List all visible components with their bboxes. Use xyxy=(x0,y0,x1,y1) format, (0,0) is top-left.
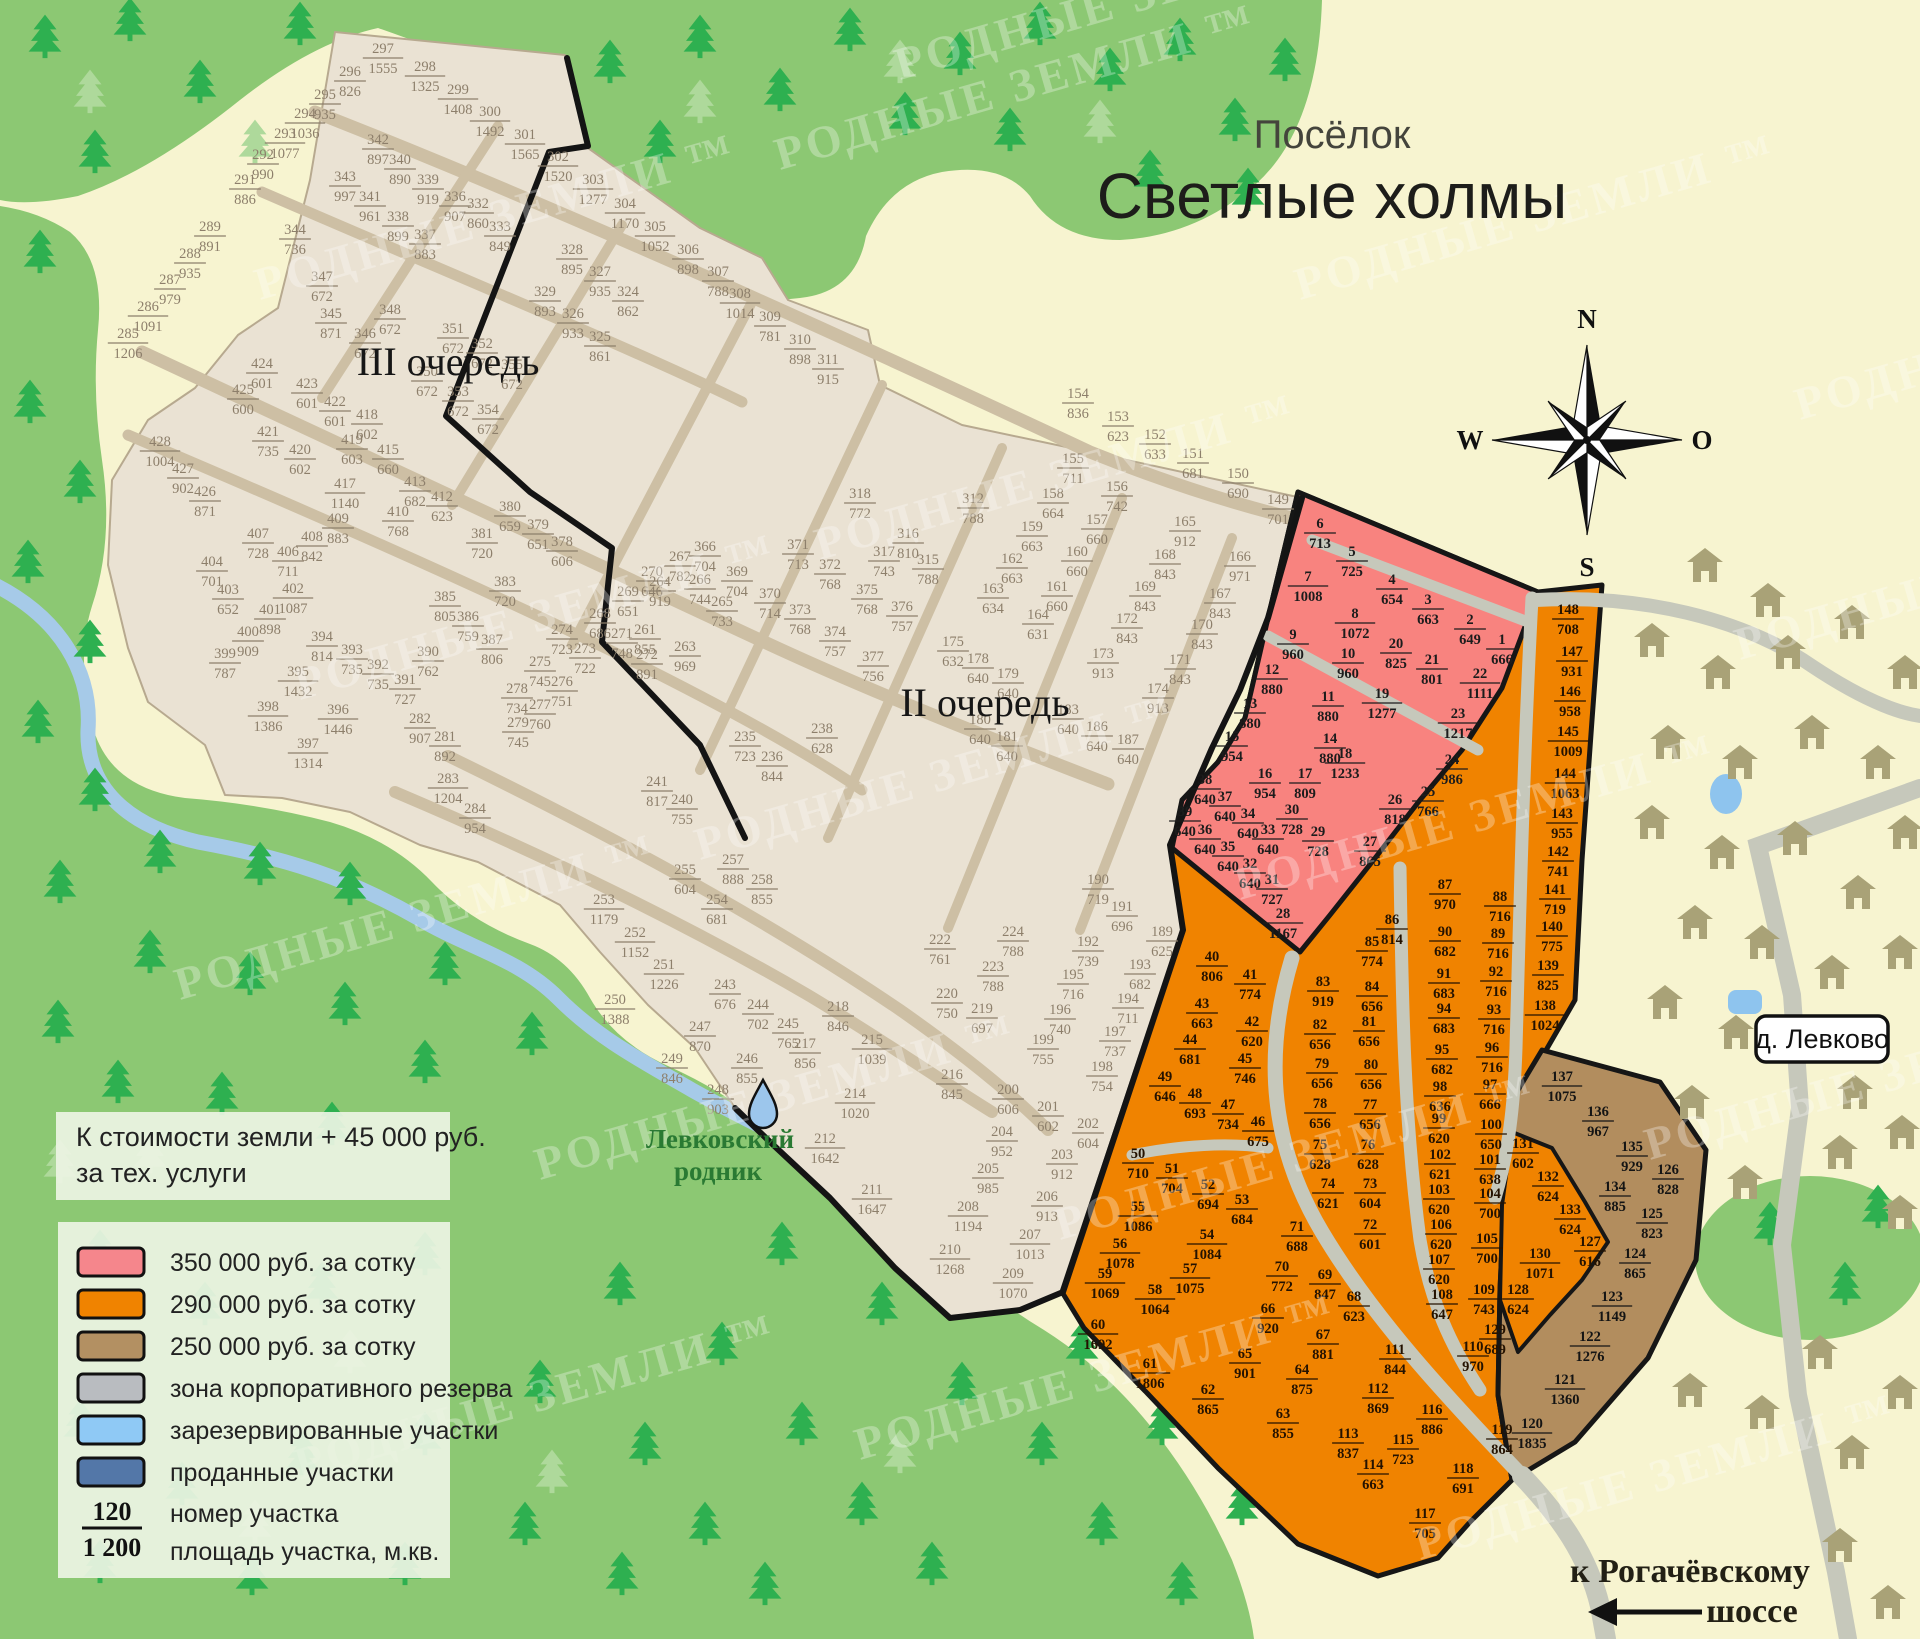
parcel-number: 325 xyxy=(589,329,611,345)
village-label-text: д. Левково xyxy=(1755,1024,1889,1054)
parcel-area: 1642 xyxy=(811,1151,840,1167)
parcel-area: 716 xyxy=(1062,987,1084,1003)
parcel-area: 676 xyxy=(714,997,736,1013)
compass-o: O xyxy=(1691,425,1712,455)
parcel-number: 246 xyxy=(736,1051,758,1067)
legend-label: зарезервированные участки xyxy=(170,1417,498,1445)
parcel-number: 287 xyxy=(159,272,181,288)
parcel-area: 1071 xyxy=(1526,1266,1555,1282)
parcel-number: 378 xyxy=(551,534,573,550)
legend-item-price-290: 290 000 руб. за сотку xyxy=(78,1290,416,1319)
parcel-area: 907 xyxy=(409,731,431,747)
parcel-area: 768 xyxy=(387,524,409,540)
parcel-number: 283 xyxy=(437,771,459,787)
parcel-area: 623 xyxy=(431,509,453,525)
parcel-area: 774 xyxy=(1361,954,1383,970)
sample-area-label: площадь участка, м.кв. xyxy=(170,1538,439,1566)
parcel-number: 311 xyxy=(817,352,838,368)
parcel-number: 374 xyxy=(824,624,847,640)
parcel-area: 825 xyxy=(1385,656,1407,672)
parcel-number: 370 xyxy=(759,586,781,602)
parcel-number: 258 xyxy=(751,872,773,888)
parcel-number: 353 xyxy=(447,384,469,400)
parcel-number: 4 xyxy=(1388,572,1395,588)
parcel-number: 41 xyxy=(1243,967,1258,983)
map-canvas: 2971555296826298132529593529914082941036… xyxy=(0,0,1920,1639)
parcel-area: 663 xyxy=(1001,571,1023,587)
legend-label: 250 000 руб. за сотку xyxy=(170,1333,416,1361)
parcel-area: 1077 xyxy=(271,146,300,162)
parcel-area: 735 xyxy=(257,444,279,460)
parcel-area: 898 xyxy=(789,352,811,368)
parcel-number: 30 xyxy=(1285,802,1300,818)
parcel-area: 701 xyxy=(1267,512,1289,528)
parcel-number: 404 xyxy=(201,554,224,570)
parcel-number: 286 xyxy=(137,299,159,315)
parcel-number: 25 xyxy=(1421,784,1436,800)
parcel-number: 310 xyxy=(789,332,811,348)
parcel-number: 109 xyxy=(1473,1282,1495,1298)
parcel-area: 979 xyxy=(159,292,181,308)
parcel-number: 68 xyxy=(1347,1289,1362,1305)
parcel-area: 696 xyxy=(1111,919,1133,935)
parcel-number: 133 xyxy=(1559,1202,1581,1218)
parcel-number: 218 xyxy=(827,999,849,1015)
parcel-number: 95 xyxy=(1435,1042,1450,1058)
compass-s: S xyxy=(1579,552,1594,582)
parcel-number: 249 xyxy=(661,1051,683,1067)
parcel-number: 196 xyxy=(1049,1002,1071,1018)
parcel-number: 22 xyxy=(1473,666,1488,682)
parcel-area: 970 xyxy=(1462,1359,1484,1375)
parcel-area: 606 xyxy=(997,1102,1019,1118)
parcel-number: 344 xyxy=(284,222,307,238)
parcel-number: 265 xyxy=(711,594,733,610)
parcel-number: 43 xyxy=(1195,996,1210,1012)
parcel-area: 1013 xyxy=(1016,1247,1045,1263)
parcel-number: 299 xyxy=(447,82,469,98)
parcel-area: 757 xyxy=(891,619,913,635)
parcel-area: 846 xyxy=(827,1019,849,1035)
parcel-area: 971 xyxy=(1229,569,1251,585)
parcel-area: 647 xyxy=(1431,1307,1453,1323)
parcel-number: 64 xyxy=(1295,1362,1310,1378)
spring-label-line2: родник xyxy=(674,1156,763,1186)
parcel-number: 88 xyxy=(1493,889,1508,905)
parcel-number: 254 xyxy=(706,892,729,908)
parcel-number: 220 xyxy=(936,986,958,1002)
parcel-area: 651 xyxy=(527,537,549,553)
parcel-area: 1206 xyxy=(114,346,143,362)
parcel-area: 656 xyxy=(1311,1076,1333,1092)
parcel-area: 960 xyxy=(1337,666,1359,682)
parcel-number: 137 xyxy=(1551,1069,1573,1085)
parcel-number: 343 xyxy=(334,169,356,185)
parcel-area: 751 xyxy=(551,694,573,710)
parcel-number: 36 xyxy=(1198,822,1213,838)
parcel-number: 419 xyxy=(341,432,363,448)
parcel-number: 6 xyxy=(1316,516,1323,532)
parcel-number: 205 xyxy=(977,1161,999,1177)
parcel-number: 171 xyxy=(1169,652,1191,668)
parcel-number: 379 xyxy=(527,517,549,533)
parcel-area: 663 xyxy=(1021,539,1043,555)
parcel-area: 741 xyxy=(1547,864,1569,880)
parcel-area: 601 xyxy=(251,376,273,392)
parcel-area: 865 xyxy=(1197,1402,1219,1418)
parcel-number: 203 xyxy=(1051,1147,1073,1163)
parcel-area: 688 xyxy=(1286,1239,1308,1255)
parcel-number: 400 xyxy=(237,624,259,640)
parcel-area: 843 xyxy=(1191,637,1213,653)
parcel-area: 1014 xyxy=(726,306,756,322)
parcel-number: 103 xyxy=(1428,1182,1450,1198)
parcel-area: 1276 xyxy=(1576,1349,1605,1365)
parcel-area: 1204 xyxy=(434,791,464,807)
parcel-area: 954 xyxy=(1221,749,1243,765)
parcel-area: 719 xyxy=(1544,902,1566,918)
parcel-area: 713 xyxy=(787,557,809,573)
parcel-area: 801 xyxy=(1421,672,1443,688)
parcel-area: 935 xyxy=(314,107,336,123)
parcel-number: 276 xyxy=(551,674,573,690)
parcel-number: 296 xyxy=(339,64,361,80)
parcel-number: 376 xyxy=(891,599,913,615)
parcel-number: 329 xyxy=(534,284,556,300)
parcel-area: 1152 xyxy=(621,945,649,961)
parcel-number: 412 xyxy=(431,489,453,505)
parcel-number: 306 xyxy=(677,242,699,258)
parcel-number: 96 xyxy=(1485,1040,1500,1056)
parcel-number: 141 xyxy=(1544,882,1566,898)
parcel-number: 279 xyxy=(507,715,529,731)
parcel-area: 716 xyxy=(1487,946,1509,962)
parcel-number: 71 xyxy=(1290,1219,1305,1235)
legend-panel: 350 000 руб. за сотку290 000 руб. за сот… xyxy=(58,1222,513,1578)
parcel-number: 14 xyxy=(1323,731,1338,747)
parcel-area: 912 xyxy=(1174,534,1196,550)
parcel-number: 167 xyxy=(1209,586,1231,602)
parcel-number: 211 xyxy=(861,1182,882,1198)
parcel-number: 48 xyxy=(1188,1086,1203,1102)
parcel-number: 168 xyxy=(1154,547,1176,563)
parcel-area: 1179 xyxy=(590,912,618,928)
parcel-number: 2 xyxy=(1466,612,1473,628)
parcel-area: 743 xyxy=(1473,1302,1495,1318)
parcel-area: 1052 xyxy=(641,239,670,255)
parcel-area: 886 xyxy=(1421,1422,1443,1438)
parcel-area: 890 xyxy=(389,172,411,188)
parcel-area: 602 xyxy=(1512,1156,1534,1172)
parcel-number: 149 xyxy=(1267,492,1289,508)
parcel-number: 160 xyxy=(1066,544,1088,560)
parcel-number: 112 xyxy=(1368,1381,1389,1397)
parcel-area: 700 xyxy=(1476,1251,1498,1267)
parcel-number: 153 xyxy=(1107,409,1129,425)
parcel-number: 318 xyxy=(849,486,871,502)
parcel-number: 73 xyxy=(1363,1176,1378,1192)
parcel-area: 727 xyxy=(394,692,416,708)
parcel-area: 862 xyxy=(617,304,639,320)
parcel-number: 300 xyxy=(479,104,501,120)
parcel-number: 199 xyxy=(1032,1032,1054,1048)
parcel-area: 725 xyxy=(1341,564,1363,580)
parcel-number: 403 xyxy=(217,582,239,598)
legend-item-price-350: 350 000 руб. за сотку xyxy=(78,1248,416,1277)
parcel-number: 115 xyxy=(1393,1432,1414,1448)
parcel-number: 422 xyxy=(324,394,346,410)
parcel-number: 1 xyxy=(1498,632,1505,648)
parcel-number: 201 xyxy=(1037,1099,1059,1115)
parcel-area: 788 xyxy=(1002,944,1024,960)
parcel-number: 42 xyxy=(1245,1014,1260,1030)
parcel-area: 656 xyxy=(1309,1037,1331,1053)
parcel-number: 47 xyxy=(1221,1097,1236,1113)
parcel-area: 620 xyxy=(1428,1272,1450,1288)
parcel-area: 606 xyxy=(551,554,573,570)
note-line1: К стоимости земли + 45 000 руб. xyxy=(76,1122,486,1152)
parcel-number: 139 xyxy=(1537,958,1559,974)
parcel-number: 69 xyxy=(1318,1267,1333,1283)
parcel-area: 958 xyxy=(1559,704,1581,720)
parcel-area: 604 xyxy=(1077,1136,1100,1152)
pond-village xyxy=(1728,990,1762,1014)
parcel-number: 127 xyxy=(1579,1234,1601,1250)
highway-label-line1: к Рогачёвскому xyxy=(1570,1553,1810,1590)
parcel-area: 898 xyxy=(259,622,281,638)
parcel-area: 952 xyxy=(991,1144,1013,1160)
parcel-area: 1087 xyxy=(279,601,308,617)
parcel-area: 755 xyxy=(1032,1052,1054,1068)
legend-swatch-price-290 xyxy=(78,1290,144,1318)
parcel-number: 195 xyxy=(1062,967,1084,983)
parcel-number: 10 xyxy=(1341,646,1356,662)
parcel-number: 377 xyxy=(862,649,884,665)
parcel-area: 1277 xyxy=(1368,706,1397,722)
parcel-number: 113 xyxy=(1338,1426,1359,1442)
parcel-area: 1268 xyxy=(936,1262,965,1278)
parcel-number: 164 xyxy=(1027,607,1050,623)
parcel-area: 756 xyxy=(862,669,884,685)
parcel-number: 426 xyxy=(194,484,216,500)
parcel-number: 63 xyxy=(1276,1406,1291,1422)
parcel-number: 37 xyxy=(1218,789,1233,805)
parcel-number: 147 xyxy=(1561,644,1583,660)
parcel-area: 881 xyxy=(1312,1347,1334,1363)
parcel-area: 897 xyxy=(367,152,389,168)
parcel-area: 691 xyxy=(1452,1481,1474,1497)
parcel-number: 90 xyxy=(1438,924,1453,940)
parcel-area: 1360 xyxy=(1551,1392,1580,1408)
parcel-number: 277 xyxy=(529,697,551,713)
parcel-number: 209 xyxy=(1002,1266,1024,1282)
parcel-number: 9 xyxy=(1289,627,1296,643)
parcel-number: 240 xyxy=(671,792,693,808)
parcel-area: 775 xyxy=(1541,939,1563,955)
parcel-area: 1555 xyxy=(369,61,398,77)
parcel-area: 689 xyxy=(1484,1342,1506,1358)
parcel-area: 734 xyxy=(1217,1117,1239,1133)
parcel-area: 640 xyxy=(1174,824,1196,840)
parcel-number: 121 xyxy=(1554,1372,1576,1388)
legend-label: 350 000 руб. за сотку xyxy=(170,1249,416,1277)
parcel-number: 428 xyxy=(149,434,171,450)
parcel-number: 410 xyxy=(387,504,409,520)
parcel-area: 997 xyxy=(334,189,356,205)
parcel-number: 129 xyxy=(1484,1322,1506,1338)
parcel-number: 118 xyxy=(1453,1461,1474,1477)
parcel-number: 375 xyxy=(856,582,878,598)
parcel-number: 407 xyxy=(247,526,269,542)
parcel-area: 885 xyxy=(1604,1199,1626,1215)
parcel-area: 690 xyxy=(1227,486,1249,502)
parcel-number: 324 xyxy=(617,284,640,300)
parcel-area: 919 xyxy=(1312,994,1334,1010)
parcel-number: 125 xyxy=(1641,1206,1663,1222)
parcel-number: 145 xyxy=(1557,724,1579,740)
parcel-area: 640 xyxy=(1194,792,1216,808)
parcel-area: 1070 xyxy=(999,1286,1028,1302)
parcel-area: 737 xyxy=(1104,1044,1126,1060)
parcel-number: 275 xyxy=(529,654,551,670)
parcel-area: 898 xyxy=(677,262,699,278)
parcel-number: 84 xyxy=(1365,979,1380,995)
parcel-number: 12 xyxy=(1265,662,1280,678)
phase3-label: III очередь xyxy=(357,339,540,384)
parcel-area: 632 xyxy=(942,654,964,670)
parcel-number: 26 xyxy=(1388,792,1403,808)
parcel-area: 855 xyxy=(634,642,656,658)
parcel-area: 843 xyxy=(1116,631,1138,647)
parcel-area: 660 xyxy=(1086,532,1108,548)
parcel-area: 871 xyxy=(194,504,216,520)
parcel-area: 901 xyxy=(1234,1366,1256,1382)
parcel-number: 408 xyxy=(301,529,323,545)
parcel-area: 865 xyxy=(1624,1266,1646,1282)
parcel-number: 106 xyxy=(1430,1217,1452,1233)
parcel-area: 723 xyxy=(1392,1452,1414,1468)
parcel-area: 1167 xyxy=(1269,926,1297,942)
parcel-number: 49 xyxy=(1158,1069,1173,1085)
parcel-area: 628 xyxy=(811,741,833,757)
parcel-area: 1075 xyxy=(1548,1089,1577,1105)
parcel-area: 640 xyxy=(1214,809,1236,825)
note-panel: К стоимости земли + 45 000 руб. за тех. … xyxy=(56,1112,486,1200)
parcel-number: 40 xyxy=(1205,949,1220,965)
parcel-number: 394 xyxy=(311,629,334,645)
parcel-number: 247 xyxy=(689,1019,711,1035)
parcel-area: 711 xyxy=(277,564,298,580)
parcel-area: 954 xyxy=(1254,786,1276,802)
parcel-number: 293 xyxy=(274,126,296,142)
parcel-area: 935 xyxy=(179,266,201,282)
parcel-area: 602 xyxy=(1037,1119,1059,1135)
parcel-area: 886 xyxy=(234,192,256,208)
parcel-number: 222 xyxy=(929,932,951,948)
parcel-number: 54 xyxy=(1200,1227,1215,1243)
legend-label: 290 000 руб. за сотку xyxy=(170,1291,416,1319)
parcel-number: 122 xyxy=(1579,1329,1601,1345)
parcel-number: 413 xyxy=(404,474,426,490)
legend-swatch-reserved xyxy=(78,1416,144,1444)
parcel-number: 175 xyxy=(942,634,964,650)
sample-number-label: номер участка xyxy=(170,1500,339,1528)
settlement-title-prefix: Посёлок xyxy=(1254,113,1411,157)
parcel-area: 659 xyxy=(499,519,521,535)
parcel-number: 83 xyxy=(1316,974,1331,990)
parcel-area: 810 xyxy=(897,546,919,562)
parcel-area: 902 xyxy=(172,481,194,497)
parcel-number: 87 xyxy=(1438,877,1453,893)
parcel-number: 235 xyxy=(734,729,756,745)
parcel-number: 44 xyxy=(1183,1032,1198,1048)
parcel-number: 89 xyxy=(1491,926,1506,942)
parcel-area: 600 xyxy=(232,402,254,418)
parcel-area: 814 xyxy=(1381,932,1403,948)
parcel-number: 134 xyxy=(1604,1179,1626,1195)
parcel-area: 880 xyxy=(1317,709,1339,725)
parcel-area: 754 xyxy=(1091,1079,1114,1095)
parcel-area: 723 xyxy=(551,642,573,658)
parcel-number: 60 xyxy=(1091,1317,1106,1333)
parcel-number: 136 xyxy=(1587,1104,1609,1120)
parcel-area: 683 xyxy=(1433,1021,1455,1037)
parcel-area: 1233 xyxy=(1331,766,1360,782)
parcel-area: 713 xyxy=(1309,536,1331,552)
parcel-number: 57 xyxy=(1183,1261,1198,1277)
parcel-number: 354 xyxy=(477,402,500,418)
parcel-area: 745 xyxy=(507,735,529,751)
parcel-number: 298 xyxy=(414,59,436,75)
highway-label-line2: шоссе xyxy=(1706,1593,1797,1630)
sample-parcel-number: 120 xyxy=(93,1497,132,1526)
parcel-number: 81 xyxy=(1362,1014,1377,1030)
parcel-area: 616 xyxy=(1579,1254,1601,1270)
parcel-number: 120 xyxy=(1521,1416,1543,1432)
parcel-area: 743 xyxy=(873,564,895,580)
parcel-area: 1388 xyxy=(601,1012,630,1028)
parcel-number: 415 xyxy=(377,442,399,458)
parcel-area: 728 xyxy=(1281,822,1303,838)
parcel-number: 101 xyxy=(1479,1152,1501,1168)
parcel-area: 602 xyxy=(289,462,311,478)
parcel-number: 17 xyxy=(1298,766,1313,782)
parcel-number: 159 xyxy=(1021,519,1043,535)
parcel-number: 202 xyxy=(1077,1116,1099,1132)
parcel-number: 157 xyxy=(1086,512,1108,528)
parcel-area: 672 xyxy=(477,422,499,438)
parcel-area: 620 xyxy=(1428,1202,1450,1218)
parcel-area: 663 xyxy=(1191,1016,1213,1032)
parcel-number: 210 xyxy=(939,1242,961,1258)
legend-swatch-price-250 xyxy=(78,1332,144,1360)
parcel-number: 396 xyxy=(327,702,349,718)
parcel-area: 625 xyxy=(1151,944,1173,960)
legend-swatch-sold xyxy=(78,1458,144,1486)
parcel-number: 292 xyxy=(252,147,274,163)
parcel-area: 765 xyxy=(777,1036,799,1052)
parcel-area: 836 xyxy=(1067,406,1089,422)
parcel-number: 70 xyxy=(1275,1259,1290,1275)
parcel-area: 969 xyxy=(674,659,696,675)
parcel-area: 915 xyxy=(817,372,839,388)
parcel-area: 621 xyxy=(1429,1167,1451,1183)
parcel-number: 105 xyxy=(1476,1231,1498,1247)
parcel-number: 253 xyxy=(593,892,615,908)
parcel-area: 826 xyxy=(339,84,361,100)
parcel-number: 305 xyxy=(644,219,666,235)
parcel-area: 716 xyxy=(1485,984,1507,1000)
